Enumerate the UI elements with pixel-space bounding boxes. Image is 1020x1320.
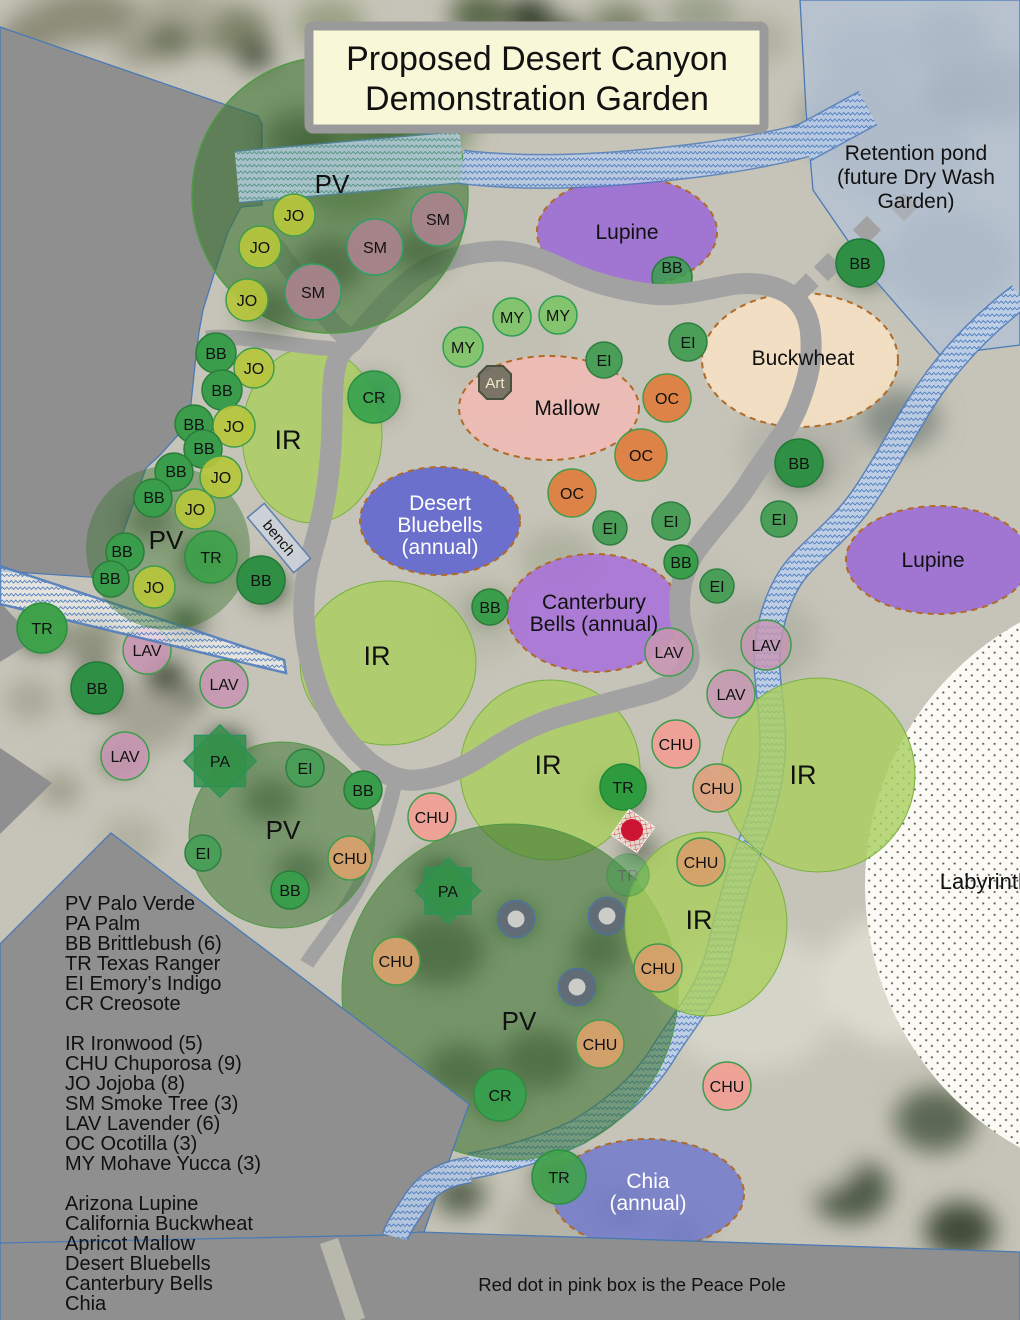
svg-text:Canterbury Bells: Canterbury Bells — [65, 1273, 213, 1295]
svg-text:LAV: LAV — [654, 645, 683, 662]
svg-text:LAV: LAV — [716, 687, 745, 704]
svg-text:CR: CR — [362, 390, 385, 407]
svg-text:SM: SM — [363, 240, 387, 257]
svg-text:PA: PA — [210, 754, 230, 771]
svg-text:Chia: Chia — [65, 1293, 107, 1315]
svg-text:Mallow: Mallow — [534, 397, 600, 420]
svg-text:EI: EI — [297, 761, 312, 778]
svg-text:(future Dry Wash: (future Dry Wash — [837, 166, 995, 189]
svg-text:OC Ocotilla (3): OC Ocotilla (3) — [65, 1133, 197, 1155]
svg-text:CHU: CHU — [333, 851, 368, 868]
svg-text:OC: OC — [629, 448, 653, 465]
svg-text:TR: TR — [612, 780, 633, 797]
svg-text:BB: BB — [670, 555, 691, 572]
svg-text:EI: EI — [596, 353, 611, 370]
svg-text:IR: IR — [275, 425, 302, 455]
svg-text:TR: TR — [31, 621, 52, 638]
svg-text:JO: JO — [144, 580, 164, 597]
svg-text:JO: JO — [185, 502, 205, 519]
svg-text:CHU: CHU — [379, 954, 414, 971]
svg-text:Demonstration Garden: Demonstration Garden — [365, 80, 709, 118]
svg-text:IR: IR — [535, 750, 562, 780]
svg-text:BB: BB — [849, 256, 870, 273]
svg-text:TR: TR — [200, 550, 221, 567]
svg-text:TR Texas Ranger: TR Texas Ranger — [65, 953, 221, 975]
svg-text:JO Jojoba (8): JO Jojoba (8) — [65, 1073, 185, 1095]
svg-text:TR: TR — [617, 868, 638, 885]
svg-text:BB: BB — [193, 441, 214, 458]
svg-text:JO: JO — [237, 293, 257, 310]
svg-text:SM: SM — [301, 285, 325, 302]
svg-text:CHU: CHU — [415, 810, 450, 827]
svg-text:Garden): Garden) — [877, 190, 954, 213]
svg-text:JO: JO — [244, 361, 264, 378]
svg-text:JO: JO — [211, 470, 231, 487]
svg-text:BB: BB — [111, 544, 132, 561]
svg-text:California Buckwheat: California Buckwheat — [65, 1213, 253, 1235]
svg-text:Desert Bluebells: Desert Bluebells — [65, 1253, 211, 1275]
svg-text:MY: MY — [451, 340, 475, 357]
svg-text:SM: SM — [426, 212, 450, 229]
svg-text:EI: EI — [771, 512, 786, 529]
svg-text:MY Mohave Yucca (3): MY Mohave Yucca (3) — [65, 1153, 261, 1175]
svg-text:EI: EI — [680, 335, 695, 352]
svg-text:LAV: LAV — [110, 749, 139, 766]
svg-text:LAV: LAV — [132, 643, 161, 660]
svg-text:Art: Art — [485, 375, 505, 392]
svg-text:BB: BB — [99, 571, 120, 588]
svg-text:Arizona Lupine: Arizona Lupine — [65, 1193, 198, 1215]
svg-text:CHU Chuporosa (9): CHU Chuporosa (9) — [65, 1053, 242, 1075]
svg-text:JO: JO — [284, 208, 304, 225]
svg-text:(annual): (annual) — [609, 1192, 686, 1215]
svg-text:IR Ironwood (5): IR Ironwood (5) — [65, 1033, 203, 1055]
svg-text:(annual): (annual) — [401, 536, 478, 559]
svg-text:Proposed Desert Canyon: Proposed Desert Canyon — [346, 40, 728, 78]
svg-text:EI Emory’s Indigo: EI Emory’s Indigo — [65, 973, 221, 995]
svg-text:PV: PV — [266, 815, 301, 845]
svg-text:BB: BB — [86, 681, 107, 698]
svg-text:CHU: CHU — [659, 737, 694, 754]
svg-text:JO: JO — [224, 419, 244, 436]
svg-text:Canterbury: Canterbury — [542, 591, 646, 614]
svg-text:MY: MY — [500, 310, 524, 327]
svg-text:EI: EI — [195, 846, 210, 863]
svg-text:EI: EI — [602, 521, 617, 538]
svg-text:IR: IR — [364, 641, 391, 671]
svg-text:IR: IR — [790, 760, 817, 790]
svg-text:CR: CR — [488, 1088, 511, 1105]
svg-text:BB: BB — [143, 490, 164, 507]
svg-text:Red dot in pink box is the Pea: Red dot in pink box is the Peace Pole — [478, 1274, 786, 1295]
svg-text:CHU: CHU — [583, 1037, 618, 1054]
svg-text:CHU: CHU — [641, 961, 676, 978]
svg-text:MY: MY — [546, 308, 570, 325]
svg-text:PA: PA — [438, 884, 458, 901]
svg-text:BB: BB — [205, 346, 226, 363]
svg-text:LAV Lavender (6): LAV Lavender (6) — [65, 1113, 220, 1135]
svg-text:PV: PV — [502, 1006, 537, 1036]
svg-text:BB: BB — [165, 464, 186, 481]
svg-text:TR: TR — [548, 1170, 569, 1187]
svg-text:OC: OC — [655, 391, 679, 408]
svg-text:BB: BB — [479, 600, 500, 617]
svg-text:Lupine: Lupine — [595, 221, 658, 244]
svg-text:PV: PV — [315, 169, 350, 199]
svg-text:CHU: CHU — [710, 1079, 745, 1096]
svg-text:IR: IR — [686, 905, 713, 935]
svg-text:BB: BB — [352, 783, 373, 800]
svg-text:PA Palm: PA Palm — [65, 913, 140, 935]
svg-text:Labyrinth: Labyrinth — [940, 869, 1020, 894]
svg-text:BB: BB — [661, 260, 682, 277]
svg-text:Bluebells: Bluebells — [397, 514, 482, 537]
svg-text:BB: BB — [250, 573, 271, 590]
svg-text:BB: BB — [211, 383, 232, 400]
svg-text:Lupine: Lupine — [901, 549, 964, 572]
svg-text:BB: BB — [279, 883, 300, 900]
svg-text:LAV: LAV — [751, 638, 780, 655]
svg-text:LAV: LAV — [209, 677, 238, 694]
svg-text:OC: OC — [560, 486, 584, 503]
svg-text:CHU: CHU — [684, 855, 719, 872]
svg-text:BB Brittlebush (6): BB Brittlebush (6) — [65, 933, 222, 955]
svg-text:CR Creosote: CR Creosote — [65, 993, 181, 1015]
svg-text:Desert: Desert — [409, 492, 471, 515]
svg-text:BB: BB — [788, 456, 809, 473]
svg-text:Buckwheat: Buckwheat — [752, 347, 855, 370]
svg-text:JO: JO — [250, 240, 270, 257]
svg-text:SM Smoke Tree (3): SM Smoke Tree (3) — [65, 1093, 238, 1115]
svg-text:EI: EI — [709, 579, 724, 596]
svg-text:PV Palo Verde: PV Palo Verde — [65, 893, 195, 915]
svg-text:Retention pond: Retention pond — [845, 142, 987, 165]
svg-text:Apricot Mallow: Apricot Mallow — [65, 1233, 196, 1255]
svg-text:Bells (annual): Bells (annual) — [530, 613, 658, 636]
svg-text:Chia: Chia — [626, 1170, 670, 1193]
svg-text:EI: EI — [663, 514, 678, 531]
svg-text:PV: PV — [149, 525, 184, 555]
svg-text:CHU: CHU — [700, 781, 735, 798]
